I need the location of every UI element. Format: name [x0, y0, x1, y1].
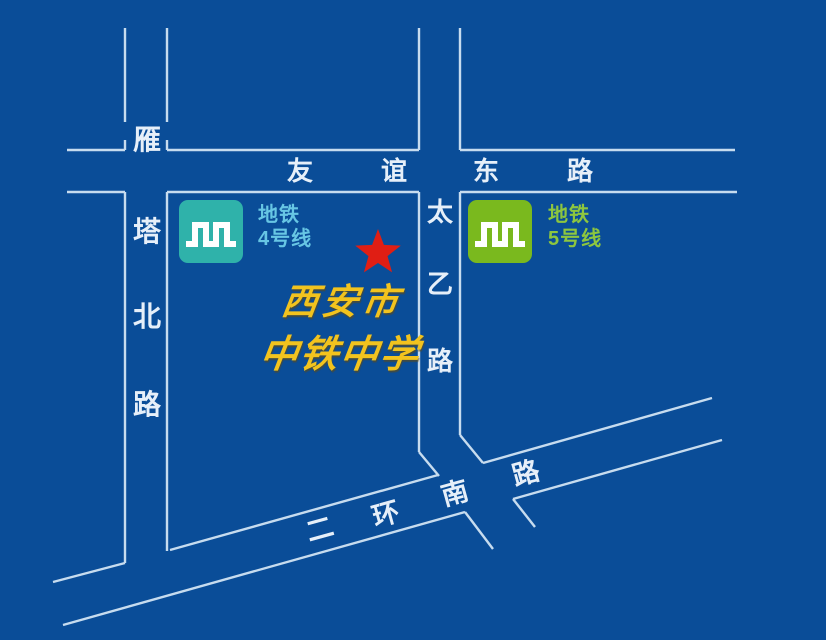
school-name-line2: 中铁中学 [257, 336, 422, 374]
location-star-icon [355, 229, 401, 272]
map-canvas: 雁 塔 北 路 友 谊 东 路 太 乙 路 二 环 南 路 地铁 4号线 地铁 … [0, 0, 826, 640]
school-name-line1: 西安市 [279, 284, 404, 320]
marker-layer [0, 0, 826, 640]
